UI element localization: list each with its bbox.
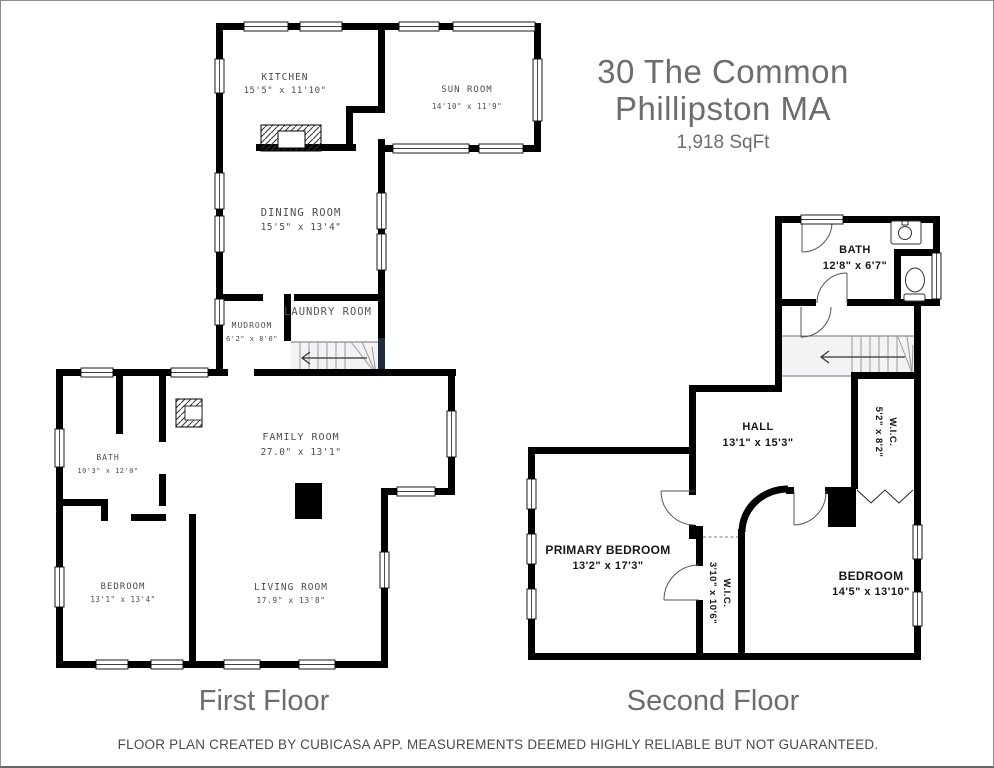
room-label-dining-room: DINING ROOM 15'5" x 13'4" xyxy=(261,207,342,234)
address-line1: 30 The Common xyxy=(597,53,849,90)
room-label-laundry-room: LAUNDRY ROOM xyxy=(284,306,372,319)
room-label-mudroom: MUDROOM 6'2" x 8'0" xyxy=(226,321,278,344)
area-sqft: 1,918 SqFt xyxy=(597,132,849,154)
disclaimer-text: FLOOR PLAN CREATED BY CUBICASA APP. MEAS… xyxy=(118,737,879,752)
room-label-bedroom-2f: BEDROOM 14'5" x 13'10" xyxy=(832,569,910,600)
room-label-living-room: LIVING ROOM 17.9" x 13'8" xyxy=(254,582,328,606)
room-label-bath-2f: BATH 12'8" x 6'7" xyxy=(823,244,887,274)
room-label-hall: HALL 13'1" x 15'3" xyxy=(722,421,793,451)
first-floor-caption: First Floor xyxy=(199,685,330,718)
floorplan-page: 30 The Common Phillipston MA 1,918 SqFt … xyxy=(0,0,994,768)
title-block: 30 The Common Phillipston MA 1,918 SqFt xyxy=(597,53,849,154)
address-line2: Phillipston MA xyxy=(597,90,849,127)
room-label-bath-1f: BATH 10'3" x 12'0" xyxy=(77,453,138,476)
room-label-bedroom-1f: BEDROOM 13'1" x 13'4" xyxy=(90,582,155,605)
second-floor-caption: Second Floor xyxy=(627,685,800,718)
room-label-kitchen: KITCHEN 15'5" x 11'10" xyxy=(244,72,327,97)
room-label-family-room: FAMILY ROOM 27.0" x 13'1" xyxy=(261,432,342,458)
room-label-sun-room: SUN ROOM 14'10" x 11'9" xyxy=(432,85,502,112)
room-label-primary-bedroom: PRIMARY BEDROOM 13'2" x 17'3" xyxy=(545,543,670,574)
room-label-wic-primary: W.I.C. 3'10" x 10'6" xyxy=(706,562,732,624)
room-label-wic-hall: W.I.C. 5'2" x 8'2" xyxy=(872,407,898,458)
